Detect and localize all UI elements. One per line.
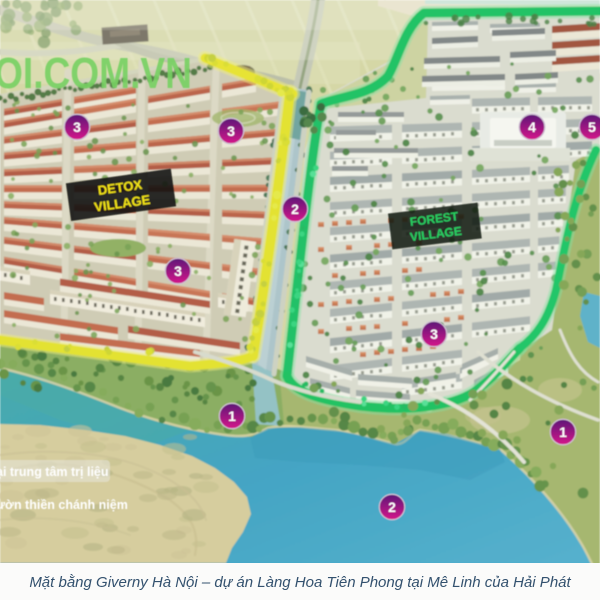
svg-text:ườn thiền chánh niệm: ườn thiền chánh niệm	[0, 498, 128, 512]
svg-text:2: 2	[388, 499, 396, 515]
svg-text:5: 5	[588, 119, 596, 135]
svg-text:3: 3	[430, 326, 438, 342]
svg-text:4: 4	[528, 119, 536, 135]
svg-text:ại trung tâm trị liệu: ại trung tâm trị liệu	[0, 465, 109, 479]
svg-text:2: 2	[291, 201, 299, 217]
svg-text:3: 3	[227, 123, 235, 139]
svg-text:1: 1	[228, 408, 236, 424]
svg-text:1: 1	[559, 424, 567, 440]
svg-text:3: 3	[73, 119, 81, 135]
svg-text:Mặt bằng Giverny Hà Nội – dự á: Mặt bằng Giverny Hà Nội – dự án Làng Hoa…	[29, 574, 571, 591]
svg-text:3: 3	[174, 263, 182, 279]
svg-text:OI.COM.VN: OI.COM.VN	[0, 49, 192, 98]
